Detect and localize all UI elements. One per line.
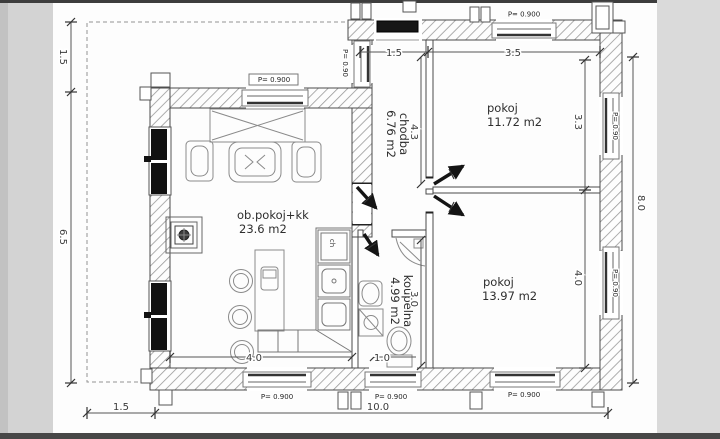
dim-living-width: 4.0 <box>246 353 262 364</box>
window-label-living-top: P= 0.900 <box>258 76 290 84</box>
window-label-right-upper: P= 0.90 <box>611 112 619 140</box>
window-hall-west <box>351 41 373 87</box>
partition-bath-west <box>352 237 358 368</box>
room-label-room1-name: pokoj <box>487 101 518 115</box>
stove <box>166 217 202 253</box>
floor-plan-page: ob.pokoj+kk 23.6 m2 pokoj 11.72 m2 pokoj… <box>0 0 720 439</box>
fridge-label: ch <box>328 239 336 247</box>
dim-hall-width: 1.5 <box>386 48 402 59</box>
wall-right <box>600 20 622 390</box>
partition-hall-east-stub <box>426 189 433 194</box>
window-label-room1-top: P= 0.900 <box>508 11 540 19</box>
partition-rooms <box>433 187 600 193</box>
dim-terrace-width: 1.5 <box>57 49 68 65</box>
dim-room1-height: 3.3 <box>572 114 583 130</box>
window-label-right-lower: P= 0.90 <box>611 269 619 297</box>
window-living-bottom <box>243 367 311 391</box>
dim-hall-length: 4.3 <box>408 124 419 140</box>
room-label-hall: chodba 6.76 m2 <box>384 110 411 158</box>
partition-bath-north-a <box>358 230 363 237</box>
window-label-room2-bottom: P= 0.900 <box>508 391 540 399</box>
entrance-door <box>374 18 422 42</box>
dim-left-height: 6.5 <box>57 229 68 245</box>
window-room2-bottom <box>490 367 560 391</box>
room-label-room1-area: 11.72 m2 <box>487 115 542 129</box>
svg-text:6.76 m2: 6.76 m2 <box>384 110 398 158</box>
window-label-hall-west: P= 0.90 <box>341 49 349 77</box>
window-room1-top <box>492 19 556 41</box>
room-label-room2-name: pokoj <box>483 275 514 289</box>
room-label-room2-area: 13.97 m2 <box>482 289 537 303</box>
floor-plan-drawing: ob.pokoj+kk 23.6 m2 pokoj 11.72 m2 pokoj… <box>0 0 720 439</box>
dim-room2-height: 4.0 <box>572 270 583 286</box>
dim-wc-width: 1.0 <box>374 353 390 364</box>
dim-bath-height: 3.0 <box>408 291 419 307</box>
dim-room1-width: 3.5 <box>505 48 521 59</box>
room-label-living-area: 23.6 m2 <box>239 222 287 236</box>
window-label-bath-bottom: P= 0.900 <box>375 393 407 401</box>
partition-bath-north-b <box>392 230 426 237</box>
dim-bottom-terrace: 1.5 <box>113 402 129 413</box>
partition-hall-east-lower <box>426 212 433 368</box>
dim-right-height: 8.0 <box>635 195 646 211</box>
dim-total-width: 10.0 <box>367 402 389 413</box>
room-label-living-name: ob.pokoj+kk <box>237 208 309 222</box>
partition-hall-east-upper <box>426 40 433 178</box>
window-bath-bottom <box>365 367 421 391</box>
svg-text:4.99 m2: 4.99 m2 <box>388 277 402 325</box>
window-label-living-bottom: P= 0.900 <box>261 393 293 401</box>
